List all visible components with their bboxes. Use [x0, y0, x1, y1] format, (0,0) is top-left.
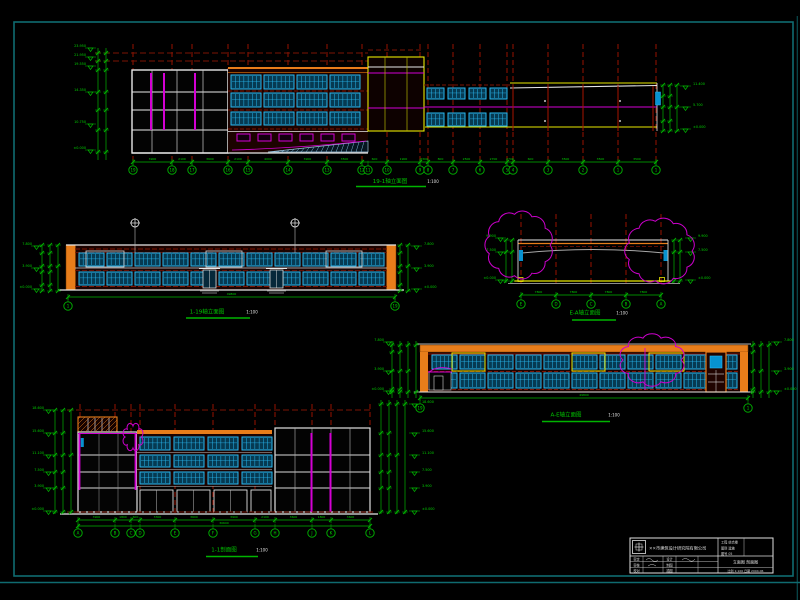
tb-sign5: 制图	[666, 562, 672, 567]
bubble-label: C	[590, 302, 593, 307]
bubble-label: 3	[547, 168, 550, 173]
window-group	[140, 472, 170, 484]
dim-text: 7800	[605, 290, 613, 294]
window-group	[330, 75, 360, 89]
bubble-label: 19	[417, 406, 423, 411]
dim-text: 30600	[219, 521, 229, 525]
window-group	[432, 355, 457, 369]
cad-sheet: 3900210036002100400039003500600190033008…	[0, 0, 800, 600]
bubble-label: 14	[285, 168, 291, 173]
view4-stair-bay	[706, 352, 726, 392]
window-group	[242, 455, 272, 467]
dim-text: 4000	[264, 157, 272, 161]
level-text: 11.100	[422, 451, 434, 455]
level-text: ±0.000	[424, 285, 437, 289]
bubble-label: 7	[452, 168, 455, 173]
level-text: 7.800	[22, 242, 32, 246]
bubble-label: 1	[67, 304, 70, 309]
window-group	[140, 455, 170, 467]
window-group	[208, 455, 238, 467]
bubble-label: 5	[506, 168, 509, 173]
window-group	[460, 373, 485, 388]
window-group	[469, 88, 486, 99]
level-text: 3.900	[424, 264, 434, 268]
window-group	[488, 373, 513, 388]
dim-text: 600	[372, 157, 378, 161]
title-block: ××市建筑设计研究院有限公司 工程 综合楼 图别 建施 图号 05 审定 审核 …	[630, 538, 773, 573]
bubble-label: H	[273, 531, 276, 536]
window-group	[656, 373, 681, 388]
corner-pier-left	[66, 245, 76, 290]
bubble-label: 9	[419, 168, 422, 173]
level-text: 3.900	[784, 367, 794, 371]
dim-text: 49800	[579, 393, 589, 397]
dim-text: 3900	[230, 515, 238, 519]
dim-text: 1800	[119, 515, 127, 519]
dim-text: 7800	[535, 290, 543, 294]
window-group	[208, 437, 238, 450]
window-group	[242, 437, 272, 450]
window-group	[191, 253, 216, 266]
level-text: ±0.000	[698, 276, 711, 280]
view1-scale: 1:100	[427, 179, 439, 184]
window-group	[516, 373, 541, 388]
level-text: 11.400	[693, 82, 705, 86]
window-group	[330, 112, 360, 125]
bubble-label: 1	[617, 168, 620, 173]
dim-text: 2700	[490, 157, 498, 161]
window-group	[275, 253, 300, 266]
bubble-label: K	[330, 531, 333, 536]
dim-text: 800	[438, 157, 444, 161]
window-group	[684, 373, 709, 388]
bubble-label: B	[114, 531, 117, 536]
level-text: 7.800	[424, 242, 434, 246]
level-text: 7.500	[422, 468, 432, 472]
tb-category-row: 图别 建施	[721, 545, 736, 550]
dim-text: 3300	[154, 515, 162, 519]
window-group	[303, 272, 328, 285]
view5-right-section	[275, 428, 370, 512]
tb-number-row: 图号 05	[721, 551, 732, 556]
window-group	[544, 355, 569, 369]
window-group	[231, 75, 261, 89]
dim-text: 3500	[562, 157, 570, 161]
dim-text: 7800	[640, 290, 648, 294]
bubble-label: A	[77, 531, 80, 536]
bubble-label: 4	[512, 168, 515, 173]
level-text: 14.350	[74, 88, 86, 92]
corner-pier-right	[387, 245, 397, 290]
level-text: ±0.000	[19, 285, 32, 289]
dim-text: 3600	[290, 515, 298, 519]
dim-text: 2700	[506, 157, 514, 161]
level-text: 7.500	[698, 248, 708, 252]
window-group	[448, 113, 465, 126]
bubble-label: G	[253, 531, 256, 536]
bubble-label: 8	[427, 168, 430, 173]
level-text: 15.600	[422, 429, 434, 433]
view2-scale: 1:100	[246, 310, 258, 315]
window-group	[208, 472, 238, 484]
bubble-label: 15	[245, 168, 251, 173]
window-group	[297, 112, 327, 125]
view5-scale: 1:100	[256, 548, 268, 553]
level-text: 18.600	[422, 400, 434, 404]
window-group	[544, 373, 569, 388]
dim-text: 3900	[149, 157, 157, 161]
window-group	[79, 253, 104, 266]
window-group	[79, 272, 104, 285]
level-text: 3.900	[34, 484, 44, 488]
window-group	[469, 113, 486, 126]
ground-window	[342, 134, 355, 141]
tb-sign1: 审定	[633, 557, 640, 562]
window-group	[490, 88, 507, 99]
view1-section-outline	[132, 70, 228, 153]
level-text: ±0.000	[31, 507, 44, 511]
bubble-label: 6	[479, 168, 482, 173]
level-text: 7.800	[374, 338, 384, 342]
tb-project-row: 工程 综合楼	[721, 540, 739, 545]
window-group	[297, 93, 327, 107]
window-group	[107, 253, 132, 266]
tb-sign2: 审核	[633, 562, 640, 567]
level-text: ±0.000	[693, 125, 706, 129]
tb-sign6: 描图	[666, 568, 672, 573]
window-group	[330, 93, 360, 107]
bubble-label: D	[554, 302, 557, 307]
window-group	[331, 272, 356, 285]
window-group	[427, 88, 444, 99]
dim-text: 3900	[93, 515, 101, 519]
view1-title: 19-1轴立面图	[373, 177, 408, 185]
dim-text: 2500	[463, 157, 471, 161]
parapet-band	[420, 345, 748, 352]
window-group	[174, 455, 204, 467]
bubble-label: 11	[365, 168, 371, 173]
tb-drawing-name: 立面图 剖面图	[733, 559, 758, 565]
bubble-label: 1	[655, 168, 658, 173]
level-text: 11.100	[32, 451, 44, 455]
level-text: ±0.000	[422, 507, 435, 511]
ground-window	[279, 134, 292, 141]
window-group	[303, 253, 328, 266]
window-group	[331, 253, 356, 266]
window-group	[163, 272, 188, 285]
window-group	[297, 75, 327, 89]
tb-scale-date: 比例 1:100 日期 2004.06	[728, 568, 764, 573]
window-group	[174, 472, 204, 484]
view5-title: 1-1剖面图	[211, 546, 237, 554]
dim-text: 2100	[178, 157, 186, 161]
window-group	[264, 112, 294, 125]
window-group	[242, 472, 272, 484]
bubble-label: 2	[582, 168, 585, 173]
level-text: 18.600	[32, 406, 44, 410]
window-group	[247, 272, 272, 285]
level-text: 7.800	[784, 338, 794, 342]
bubble-label: 17	[189, 168, 195, 173]
bubble-label: 19	[130, 168, 136, 173]
bubble-label: 18	[169, 168, 175, 173]
tb-sign4: 设计	[666, 557, 673, 562]
window-group	[264, 75, 294, 89]
bubble-label: 10	[384, 168, 390, 173]
window-group	[264, 93, 294, 107]
bubble-label: 13	[324, 168, 330, 173]
dim-text: 3600	[206, 157, 214, 161]
window-group	[488, 355, 513, 369]
level-text: ±0.000	[784, 387, 797, 391]
bubble-label: 1	[747, 406, 750, 411]
dim-text: 3900	[304, 157, 312, 161]
level-text: ±0.000	[483, 276, 496, 280]
ground-window	[321, 134, 334, 141]
window-group	[600, 373, 625, 388]
bubble-label: B	[625, 302, 628, 307]
dim-text: 3600	[347, 515, 355, 519]
view5-left-section	[78, 432, 137, 512]
window-group	[107, 272, 132, 285]
dim-text: 1800	[318, 515, 326, 519]
level-text: ±0.000	[73, 146, 86, 150]
view1-stair-tower	[368, 50, 424, 131]
window-group	[572, 373, 597, 388]
dim-text: 3500	[633, 157, 641, 161]
level-text: 9.900	[698, 234, 708, 238]
window-group	[231, 93, 261, 107]
dim-text: 3500	[597, 157, 605, 161]
dim-text: 7800	[570, 290, 578, 294]
level-text: 5.700	[693, 103, 703, 107]
level-text: 7.500	[34, 468, 44, 472]
ground-window	[300, 134, 313, 141]
bubble-label: A	[660, 302, 663, 307]
level-text: 19.550	[74, 62, 86, 66]
dim-text: 2100	[261, 515, 269, 519]
level-text: 15.600	[32, 429, 44, 433]
window-group	[572, 355, 597, 369]
view3-title: E-A轴立面图	[569, 309, 601, 317]
window-group	[219, 253, 244, 266]
level-text: 3.900	[374, 367, 384, 371]
window-group	[656, 355, 681, 369]
dim-text: 600	[528, 157, 534, 161]
level-text: 3.900	[22, 264, 32, 268]
window-group	[135, 272, 160, 285]
view3-scale: 1:100	[616, 311, 628, 316]
bubble-label: 16	[225, 168, 231, 173]
dim-text: 3300	[420, 157, 428, 161]
view5-storefront	[140, 490, 271, 512]
level-text: 21.950	[74, 53, 86, 57]
ground-window	[237, 134, 250, 141]
window-group	[163, 253, 188, 266]
ground-window	[258, 134, 271, 141]
dim-text: 49800	[227, 292, 237, 296]
cad-drawing-canvas: 3900210036002100400039003500600190033008…	[0, 0, 800, 600]
bubble-label: 19	[392, 304, 398, 309]
dim-text: 600	[133, 515, 139, 519]
window-group	[448, 88, 465, 99]
view4-scale: 1:100	[608, 413, 620, 418]
window-group	[684, 355, 709, 369]
bubble-label: J	[310, 531, 312, 536]
tb-sign3: 校对	[633, 568, 640, 573]
window-group	[359, 253, 384, 266]
window-group	[490, 113, 507, 126]
level-text: 7.500	[486, 248, 496, 252]
window-group	[174, 437, 204, 450]
bubble-label: D	[138, 531, 141, 536]
window-group	[231, 112, 261, 125]
view4-title: A-E轴立面图	[550, 411, 582, 419]
dim-text: 3600	[190, 515, 198, 519]
window-group	[460, 355, 485, 369]
company-name: ××市建筑设计研究院有限公司	[649, 545, 706, 552]
window-group	[135, 253, 160, 266]
level-text: ±0.000	[371, 387, 384, 391]
level-text: 10.750	[74, 120, 86, 124]
window-group	[219, 272, 244, 285]
view2-title: 1-19轴立面图	[190, 308, 225, 316]
level-text: 3.900	[422, 484, 432, 488]
dim-text: 2100	[234, 157, 242, 161]
dim-text: 1900	[400, 157, 408, 161]
bubble-label: C	[130, 531, 133, 536]
window-group	[427, 113, 444, 126]
window-group	[247, 253, 272, 266]
dim-text: 3500	[341, 157, 349, 161]
window-group	[516, 355, 541, 369]
window-group	[359, 272, 384, 285]
level-text: 23.950	[74, 44, 86, 48]
window-group	[140, 437, 170, 450]
